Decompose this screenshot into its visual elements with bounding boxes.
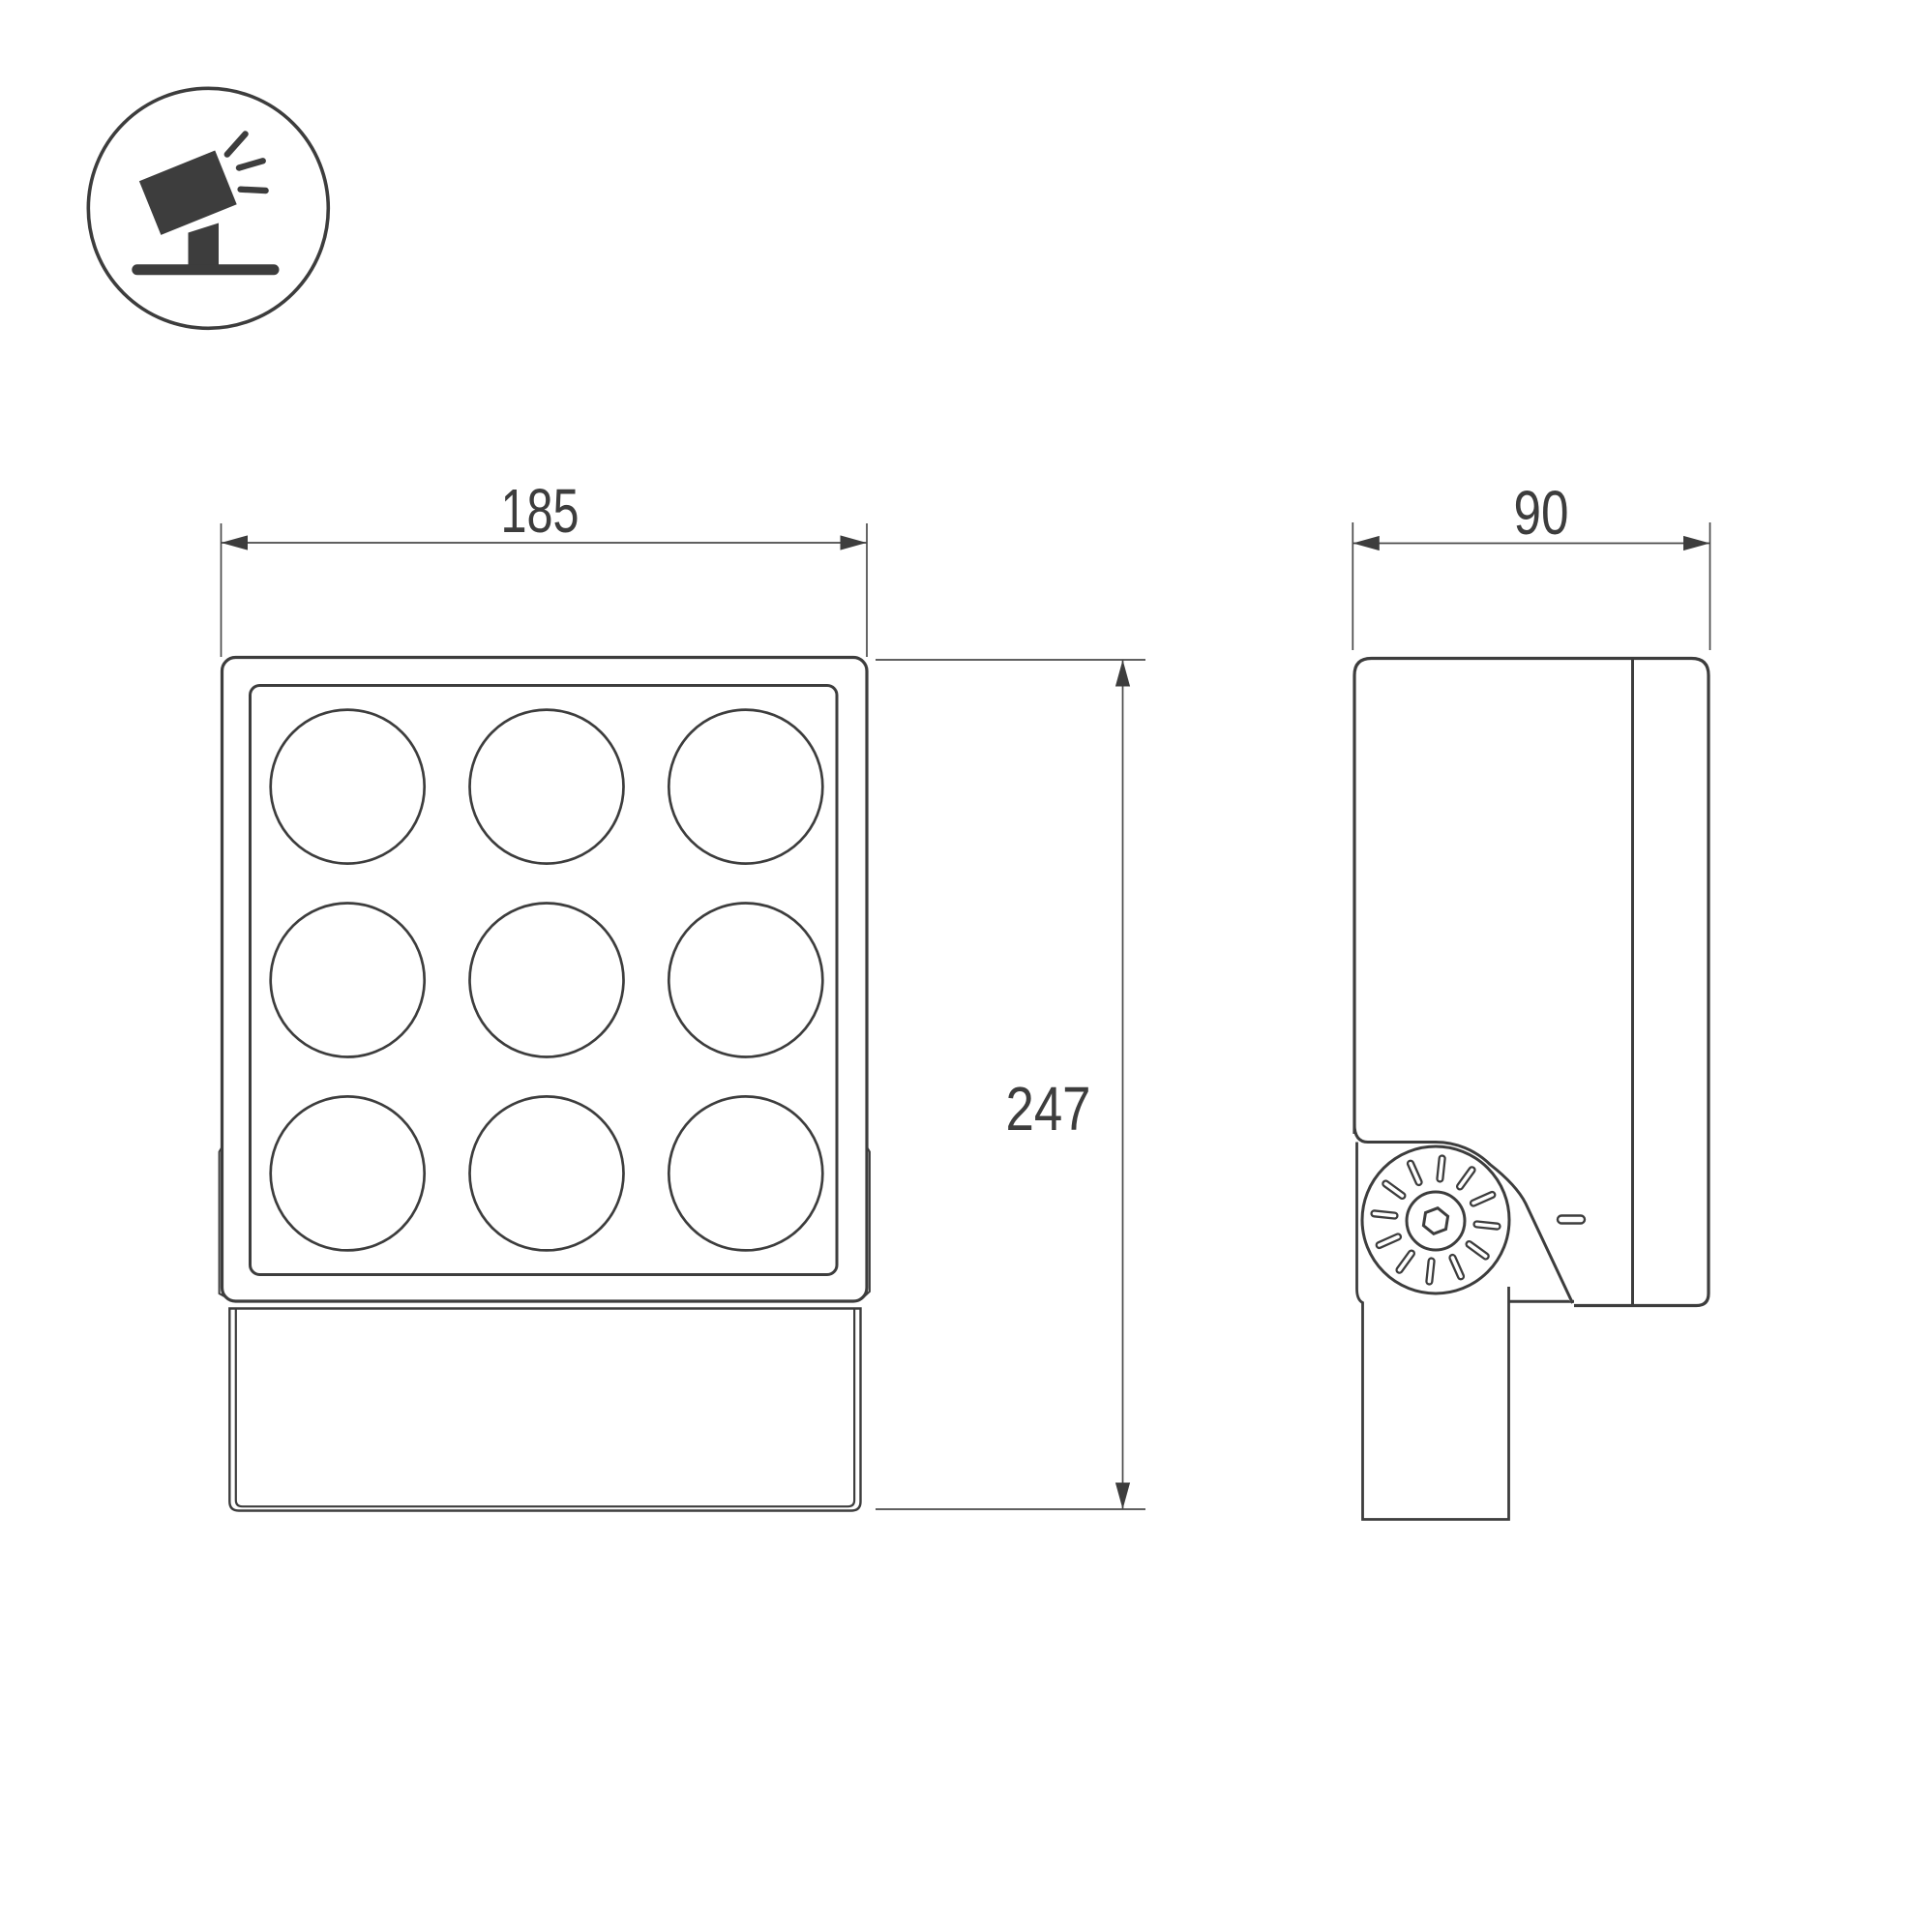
svg-text:247: 247: [1006, 1074, 1091, 1144]
svg-text:90: 90: [1514, 478, 1569, 548]
svg-text:185: 185: [501, 476, 580, 546]
